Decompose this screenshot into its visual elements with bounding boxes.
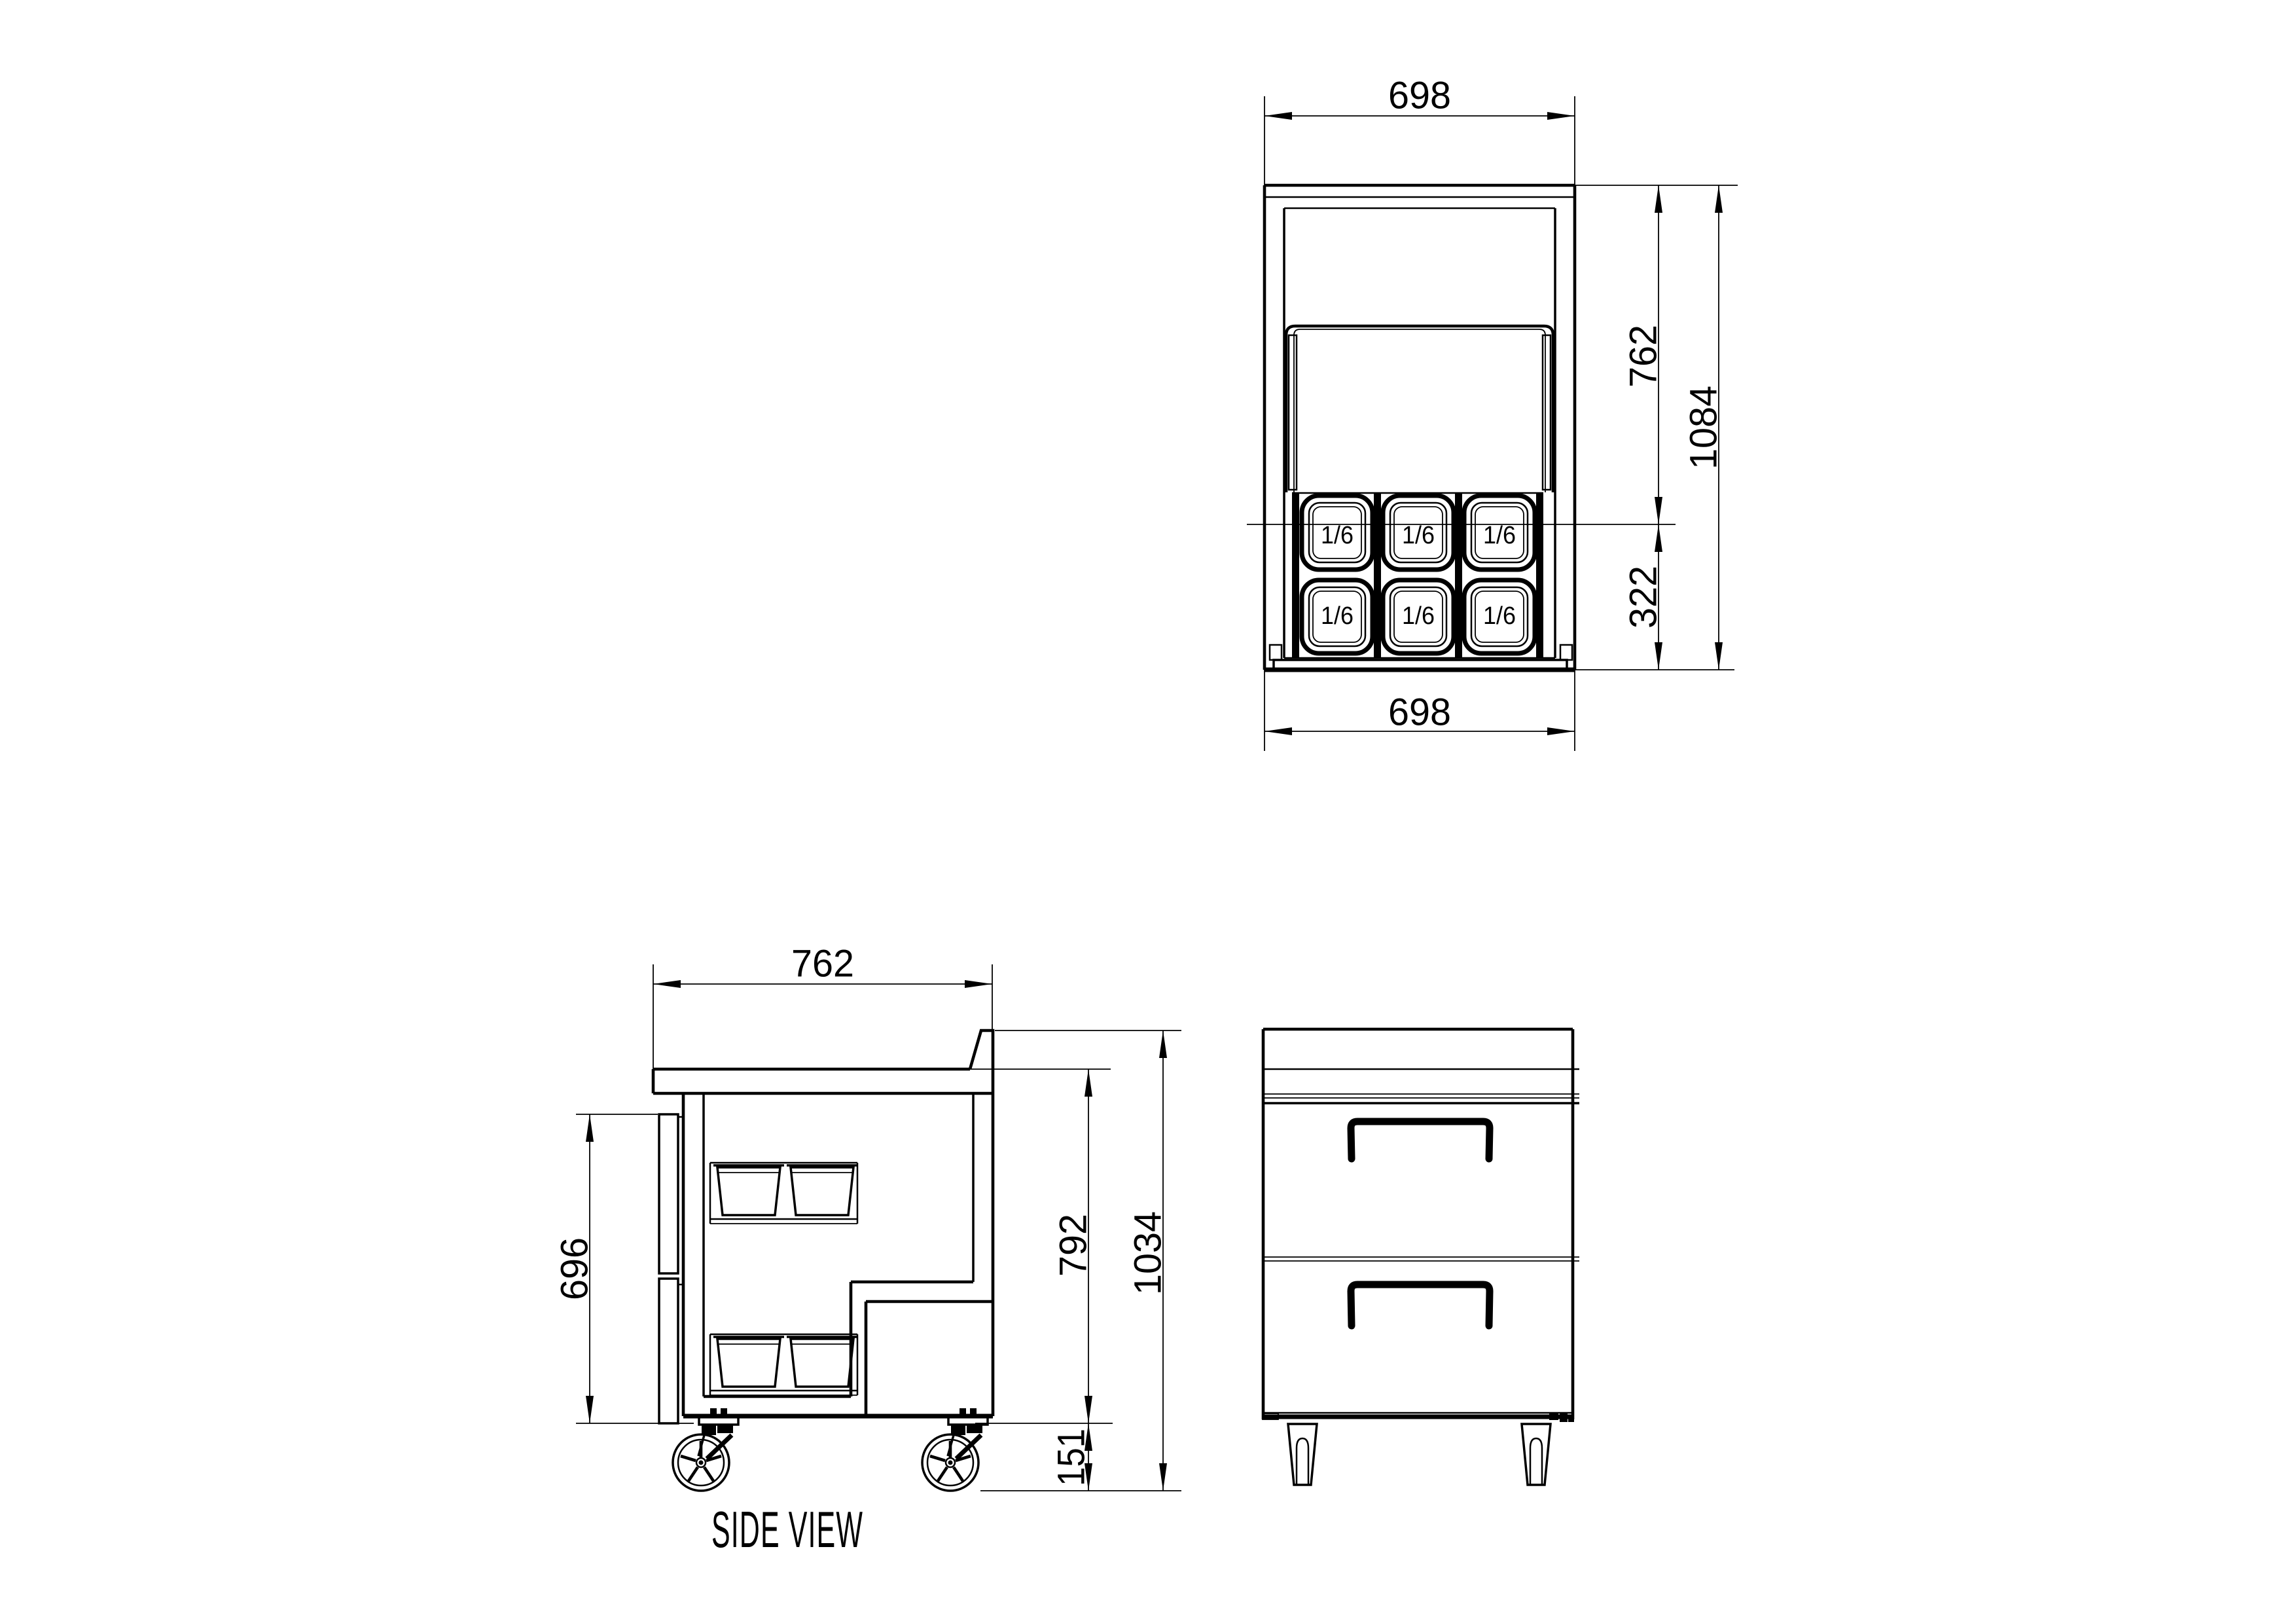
gn-pan: 1/6: [1383, 580, 1454, 653]
dim-label-overall-height: 1034: [1127, 1211, 1170, 1295]
dim-label-width-top: 698: [1388, 75, 1451, 117]
arrowhead-icon: [1265, 112, 1292, 120]
gn-pan-rack: 1/6 1/6 1/6 1/6: [1292, 493, 1543, 658]
arrowhead-icon: [1715, 642, 1723, 670]
dimension-front-panels-height: 696: [554, 1114, 694, 1423]
gn-pan: 1/6: [1464, 496, 1535, 570]
front-view: [1263, 1029, 1579, 1485]
dim-label-depth-lower: 322: [1623, 566, 1665, 629]
pan-size-label: 1/6: [1483, 602, 1516, 630]
dim-label-body-height: 792: [1052, 1214, 1095, 1277]
pan-divider-bar: [1536, 493, 1543, 658]
dim-label-front-height: 696: [554, 1237, 596, 1300]
front-leg-left: [1288, 1424, 1317, 1485]
backsplash: [970, 1030, 993, 1069]
side-view: 762 696 792 151: [554, 943, 1182, 1559]
pan-divider-bar: [1374, 493, 1381, 658]
panel-side-channel: [1543, 335, 1551, 490]
panel-side-channel: [1289, 335, 1297, 490]
arrowhead-icon: [586, 1114, 594, 1142]
arrowhead-icon: [1547, 727, 1575, 735]
pan-divider-bar: [1292, 493, 1299, 658]
dim-label-width-bottom: 698: [1388, 691, 1451, 734]
arrowhead-icon: [1655, 497, 1662, 524]
pan-size-label: 1/6: [1321, 522, 1354, 549]
pan-size-label: 1/6: [1402, 602, 1435, 630]
plan-back-panel: [1286, 326, 1553, 492]
pan-side-profile: [717, 1339, 780, 1387]
side-drawer2-pans: [710, 1334, 857, 1395]
arrowhead-icon: [1655, 524, 1662, 552]
drawer-handle-top: [1351, 1122, 1490, 1159]
gn-pan: 1/6: [1464, 580, 1535, 653]
dim-label-depth-total: 1084: [1683, 386, 1725, 469]
side-countertop: [653, 1030, 993, 1093]
dimension-depths-right: 762 322 1084: [1247, 185, 1738, 670]
pan-size-label: 1/6: [1321, 602, 1354, 630]
side-view-title: SIDE VIEW: [711, 1501, 863, 1558]
pan-side-profile: [717, 1167, 780, 1215]
drawer-front-panel: [659, 1279, 678, 1423]
arrowhead-icon: [586, 1396, 594, 1423]
front-body-outline: [1263, 1029, 1579, 1422]
gn-pan: 1/6: [1302, 496, 1372, 570]
drawer-handle-bottom: [1351, 1285, 1490, 1326]
pan-size-label: 1/6: [1402, 522, 1435, 549]
caster-front: [673, 1408, 738, 1491]
dim-label-side-depth: 762: [791, 943, 854, 985]
pan-side-profile: [791, 1339, 853, 1387]
caster-rear: [922, 1408, 988, 1491]
arrowhead-icon: [965, 980, 992, 988]
dim-label-depth-upper: 762: [1623, 325, 1665, 388]
arrowhead-icon: [1085, 1396, 1092, 1423]
arrowhead-icon: [653, 980, 681, 988]
side-drawer1-pans: [710, 1163, 857, 1224]
arrowhead-icon: [1265, 727, 1292, 735]
drawer-front-panel: [659, 1114, 678, 1273]
dim-label-caster-height: 151: [1050, 1429, 1093, 1486]
arrowhead-icon: [1547, 112, 1575, 120]
dimension-width-bottom: 698: [1265, 670, 1575, 751]
side-drawer-fronts: [659, 1114, 683, 1423]
arrowhead-icon: [1655, 185, 1662, 213]
front-leg-right: [1522, 1424, 1551, 1485]
pan-divider-bar: [1455, 493, 1462, 658]
arrowhead-icon: [1085, 1069, 1092, 1097]
arrowhead-icon: [1159, 1030, 1167, 1058]
drawing-page: 1/6 1/6 1/6 1/6: [0, 0, 2296, 1623]
side-body-outline: [683, 1069, 993, 1416]
pan-size-label: 1/6: [1483, 522, 1516, 549]
dimension-side-depth: 762: [653, 943, 992, 1070]
pan-side-profile: [791, 1167, 853, 1215]
technical-drawing-canvas: 1/6 1/6 1/6 1/6: [0, 0, 2296, 1623]
gn-pan: 1/6: [1302, 580, 1372, 653]
dimension-caster-height: 151: [1050, 1423, 1093, 1491]
gn-pan: 1/6: [1383, 496, 1454, 570]
arrowhead-icon: [1655, 642, 1662, 670]
arrowhead-icon: [1159, 1463, 1167, 1491]
dimension-width-top: 698: [1265, 75, 1575, 186]
arrowhead-icon: [1715, 185, 1723, 213]
plan-view: 1/6 1/6 1/6 1/6: [1247, 75, 1738, 752]
